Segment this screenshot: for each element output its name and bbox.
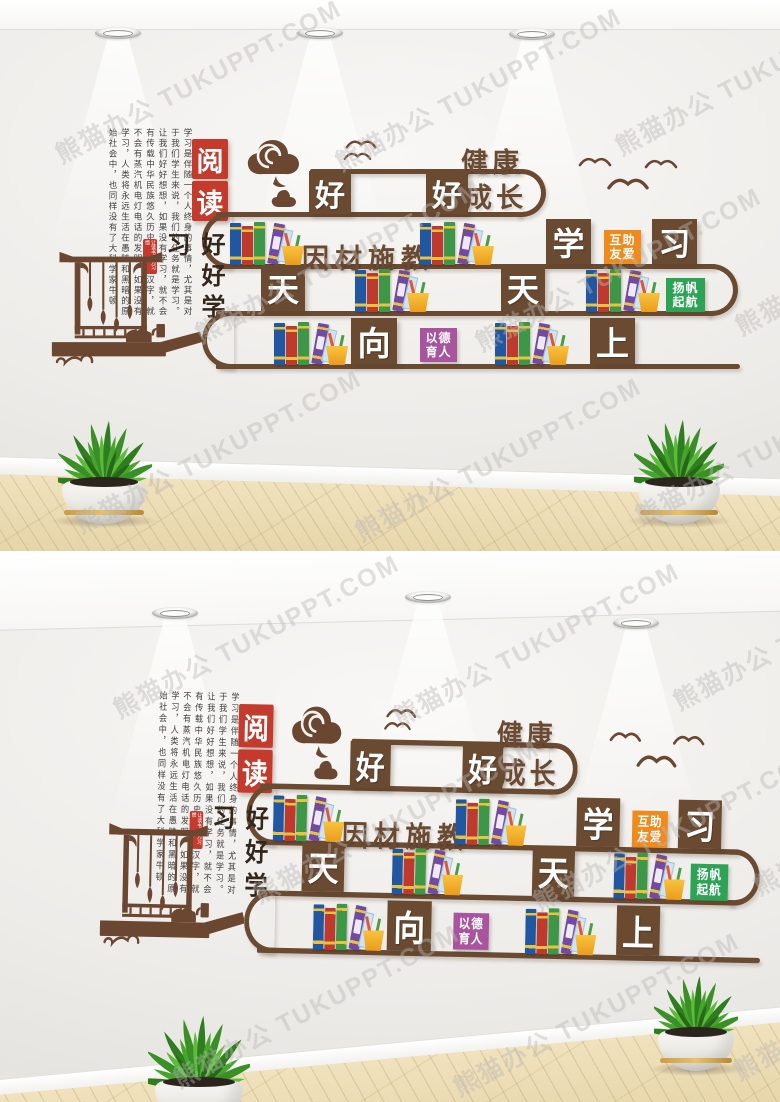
shelf-cap [728,849,760,906]
shelf-rail [352,739,556,749]
books-decoration [313,900,381,951]
recessed-light-icon [509,28,555,40]
design-slot: 阅 读 [48,551,780,1030]
books-decoration [613,849,681,900]
culture-wall-design: 阅 读 [48,551,780,1030]
tian-square-1: 天 [301,841,344,892]
showroom-scene-bottom: 阅 读 [0,551,780,1102]
bird-icon [609,725,642,749]
books-decoration [455,795,523,846]
hao-square-2: 好 [462,743,503,790]
cloud-icon [284,702,349,762]
intro-paragraph: 学习是伴随一个人终身的事情，尤其是对于我们学生来说，我们的任务就是学习。让我们好… [124,690,242,900]
sail-line2: 起航 [696,882,721,898]
calligraphy-motto: 好好学习 [202,804,272,930]
shelf-cap [548,743,578,795]
cloud-icon-small [312,758,341,780]
tian-square-2: 天 [532,846,575,897]
ceiling [0,0,780,30]
cloud-swirl-ornament [102,928,145,948]
mockup-image: 阅 读 [0,0,780,1102]
health-text-bottom: 成长 [499,749,559,792]
xue-square: 学 [576,797,620,846]
sail-line1: 扬帆 [697,867,722,883]
bird-icon [382,702,421,737]
plant-pot [155,1081,243,1102]
brush-stand-illustration [98,813,247,952]
shelf-rail [257,947,760,963]
bird-icon [672,727,705,754]
xi-square: 习 [678,800,722,849]
teach-phrase: 因材施教 [342,812,470,857]
recessed-light-icon [297,27,343,39]
virtue-line2: 育人 [458,931,483,947]
showroom-scene-top: 阅 读 [0,0,780,551]
books-decoration [525,904,593,955]
seal-stamp: 让读书成为习惯 [189,811,203,849]
books-decoration [392,844,460,895]
mutual-aid-line1: 互助 [637,814,662,830]
sail-badge: 扬帆 起航 [690,864,728,901]
shelf-cap [246,783,276,845]
health-text-top: 健康 [496,712,556,755]
mutual-aid-badge: 互助 友爱 [632,810,668,847]
books-decoration [273,791,341,842]
shelf-rail [258,890,734,905]
shelf-rail [260,783,554,795]
virtue-line1: 以德 [459,916,484,932]
reading-badge-bottom: 读 [237,749,272,793]
shang-square: 上 [616,905,660,956]
xiang-square: 向 [387,900,432,951]
recessed-light-icon [95,27,141,39]
hao-square-1: 好 [350,741,391,788]
reading-badge-top: 阅 [238,704,273,748]
mutual-aid-line2: 友爱 [637,829,662,845]
shelf-rail [259,839,739,854]
shelf-cap [244,890,276,953]
virtue-badge: 以德 育人 [453,913,489,950]
bird-icon [633,746,680,777]
